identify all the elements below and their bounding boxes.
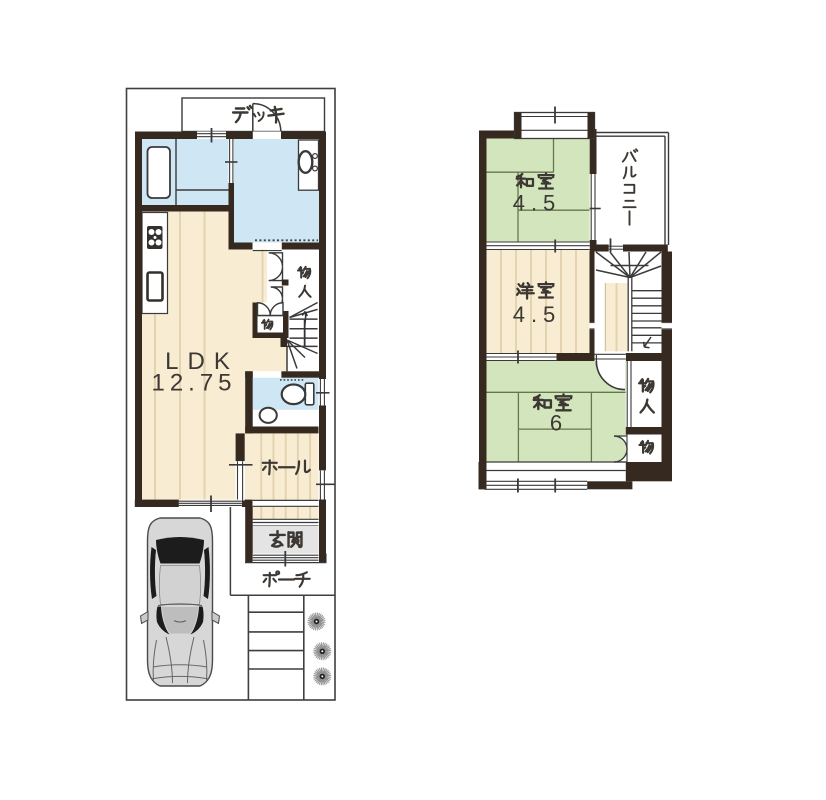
svg-text:6: 6 <box>550 411 562 436</box>
svg-text:4.5: 4.5 <box>513 302 562 327</box>
svg-text:4.5: 4.5 <box>513 191 562 216</box>
svg-text:12.75: 12.75 <box>151 370 236 397</box>
